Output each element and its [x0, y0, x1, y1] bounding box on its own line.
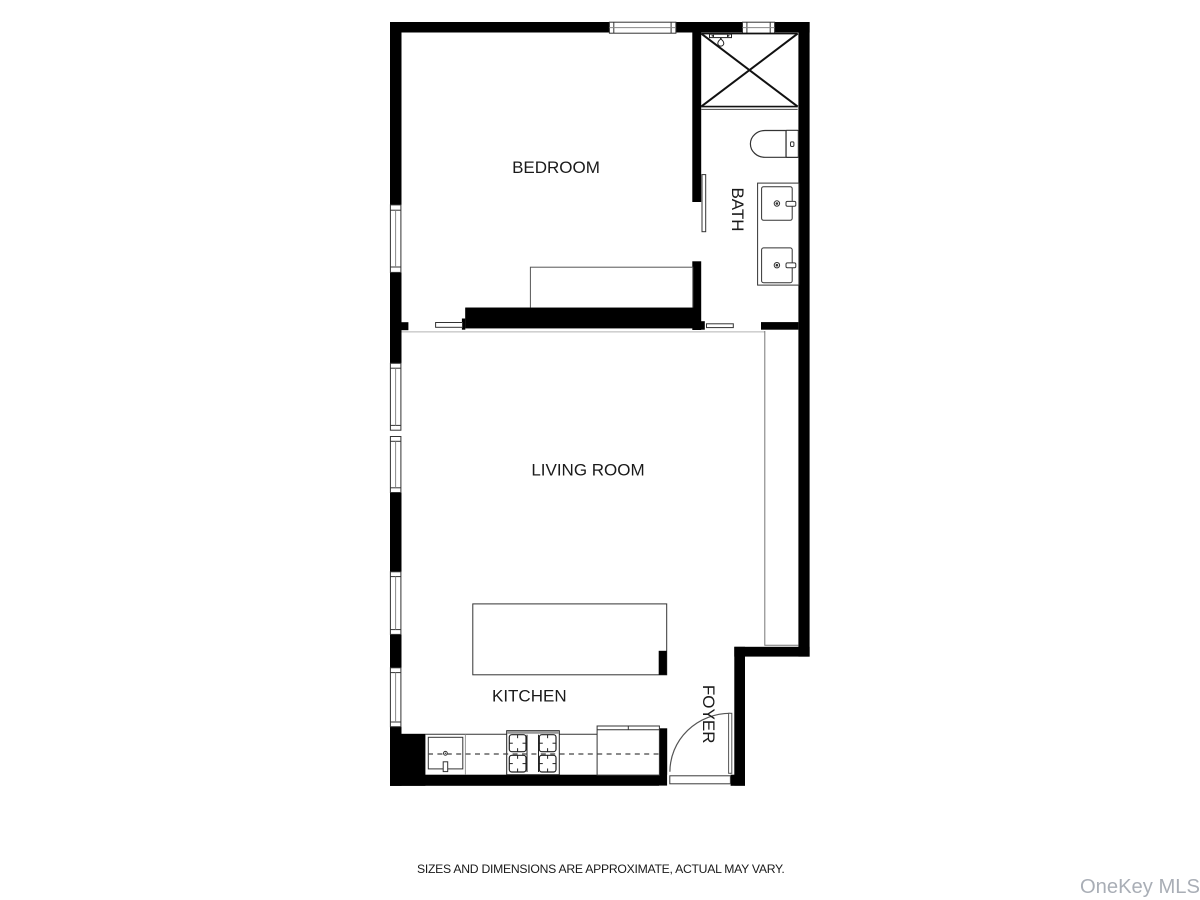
svg-text:FOYER: FOYER [699, 685, 718, 744]
svg-text:BATH: BATH [728, 187, 747, 231]
svg-text:KITCHEN: KITCHEN [492, 686, 567, 705]
svg-text:OneKey MLS: OneKey MLS [1080, 876, 1200, 898]
svg-text:SIZES AND DIMENSIONS ARE APPRO: SIZES AND DIMENSIONS ARE APPROXIMATE, AC… [417, 862, 784, 876]
svg-text:LIVING ROOM: LIVING ROOM [531, 461, 644, 480]
svg-text:BEDROOM: BEDROOM [512, 158, 600, 177]
